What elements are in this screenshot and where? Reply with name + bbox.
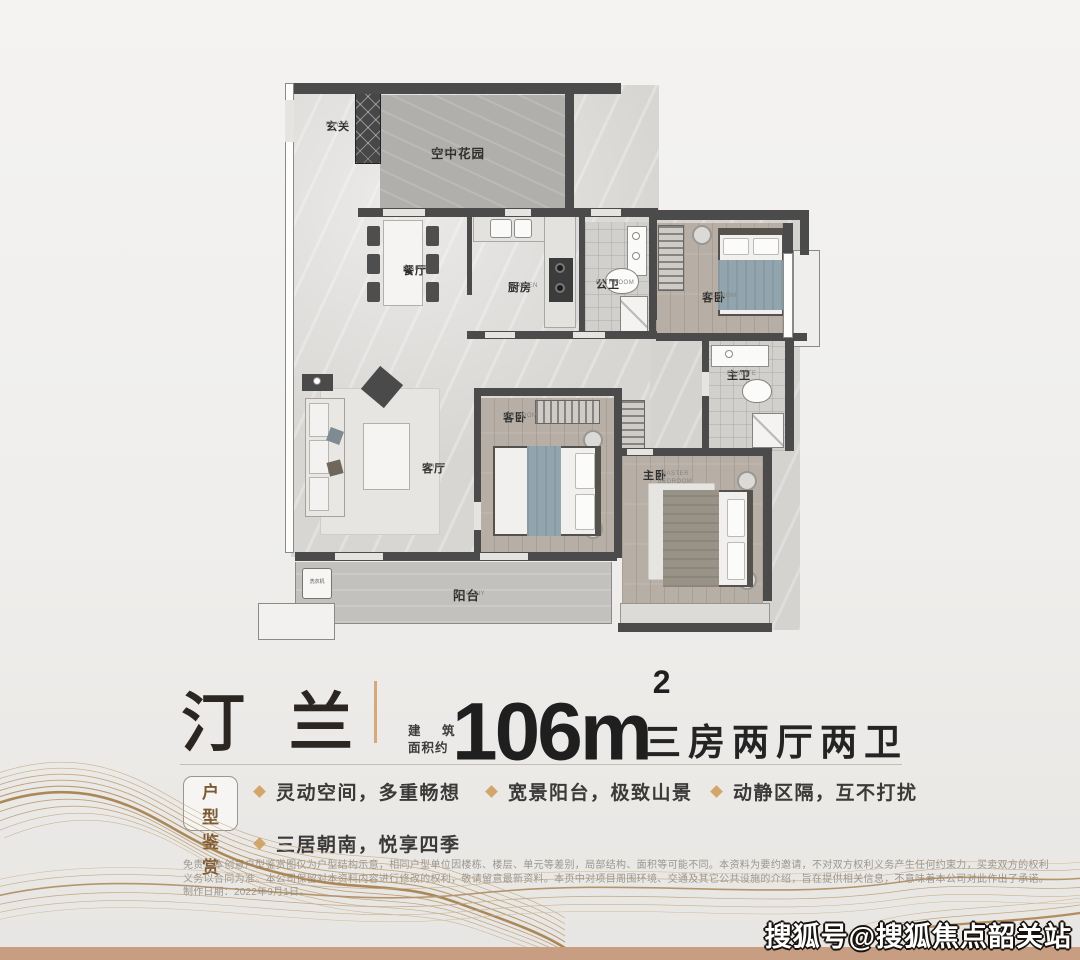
diamond-bullet-icon [253,837,266,850]
window-wall [783,253,793,338]
toilet [742,379,772,403]
wall-segment [481,388,620,396]
diamond-bullet-icon [710,785,723,798]
shower [752,413,784,448]
ensuite-vanity [711,345,769,367]
wall-segment [618,623,772,632]
wall-segment [702,341,709,453]
basin-icon [632,232,640,240]
decor-icon [313,377,321,385]
bed [663,490,753,587]
sofa [305,398,345,517]
wall-segment [651,220,657,320]
wall-segment [614,388,622,558]
diamond-bullet-icon [253,785,266,798]
wall-segment [800,210,809,255]
plan-name: 汀 兰 [181,672,367,764]
bed [718,228,784,316]
diamond-bullet-icon [485,785,498,798]
bed [493,446,601,536]
wall-segment [474,388,481,560]
door-gap [383,209,425,216]
wardrobe [658,225,684,291]
floor-plan: 洗衣机 [255,82,830,647]
disclaimer-text: 免责：本创意户型鉴赏图仅为户型结构示意，相同户型单位因楼栋、楼层、单元等差别，局… [183,859,1049,900]
wall-segment [783,223,793,253]
washing-machine: 洗衣机 [302,568,332,599]
separator-rule [180,764,902,765]
door-gap [702,372,709,396]
poster-page: 洗衣机 [0,0,1080,960]
wall-segment [763,456,772,601]
kitchen-sink [490,219,512,238]
washer-label: 洗衣机 [303,578,331,585]
door-gap [485,332,515,338]
dining-chair [367,254,380,274]
round-rug [692,225,712,245]
feature-item: 三居朝南，悦享四季 [255,830,461,857]
basin-icon [725,350,733,358]
wardrobe [535,400,600,424]
kitchen-sink [514,219,532,238]
appreciation-badge: 户 型 鉴 赏 [183,776,238,831]
dining-chair [426,282,439,302]
master-window-bay [620,603,770,625]
round-rug [737,471,757,491]
sliding-door-gap [480,553,528,560]
feature-item: 灵动空间，多重畅想 [255,778,461,805]
wall-segment [467,215,472,295]
entry-door-gap [285,100,294,142]
coffee-table [363,423,410,490]
dining-chair [426,226,439,246]
square-exponent: 2 [653,664,671,700]
stove [549,258,573,302]
dining-chair [367,282,380,302]
layout-type: 三房两厅两卫 [644,712,908,766]
door-gap [627,449,653,455]
window-gap [591,209,621,216]
ac-platform [258,603,335,640]
dining-chair [367,226,380,246]
sliding-door-gap [335,553,383,560]
shower [620,296,648,332]
door-gap [505,209,531,216]
door-gap [474,502,481,530]
elevator-shaft [355,92,381,164]
dining-table [383,220,423,306]
feature-item: 动静区隔，互不打扰 [712,778,918,805]
wall-segment [785,341,794,451]
dining-chair [426,254,439,274]
door-gap [573,332,605,338]
wall-segment [651,210,807,220]
area-figure: 106m2 [452,682,668,770]
wall-segment [579,215,585,333]
gold-divider [374,681,377,743]
feature-item: 宽景阳台，极致山景 [487,778,693,805]
wall-segment [291,83,621,94]
watermark: 搜狐号@搜狐焦点韶关站 [765,915,1072,954]
wall-segment [565,94,574,210]
basin-icon [632,252,640,260]
window-wall [285,83,294,553]
